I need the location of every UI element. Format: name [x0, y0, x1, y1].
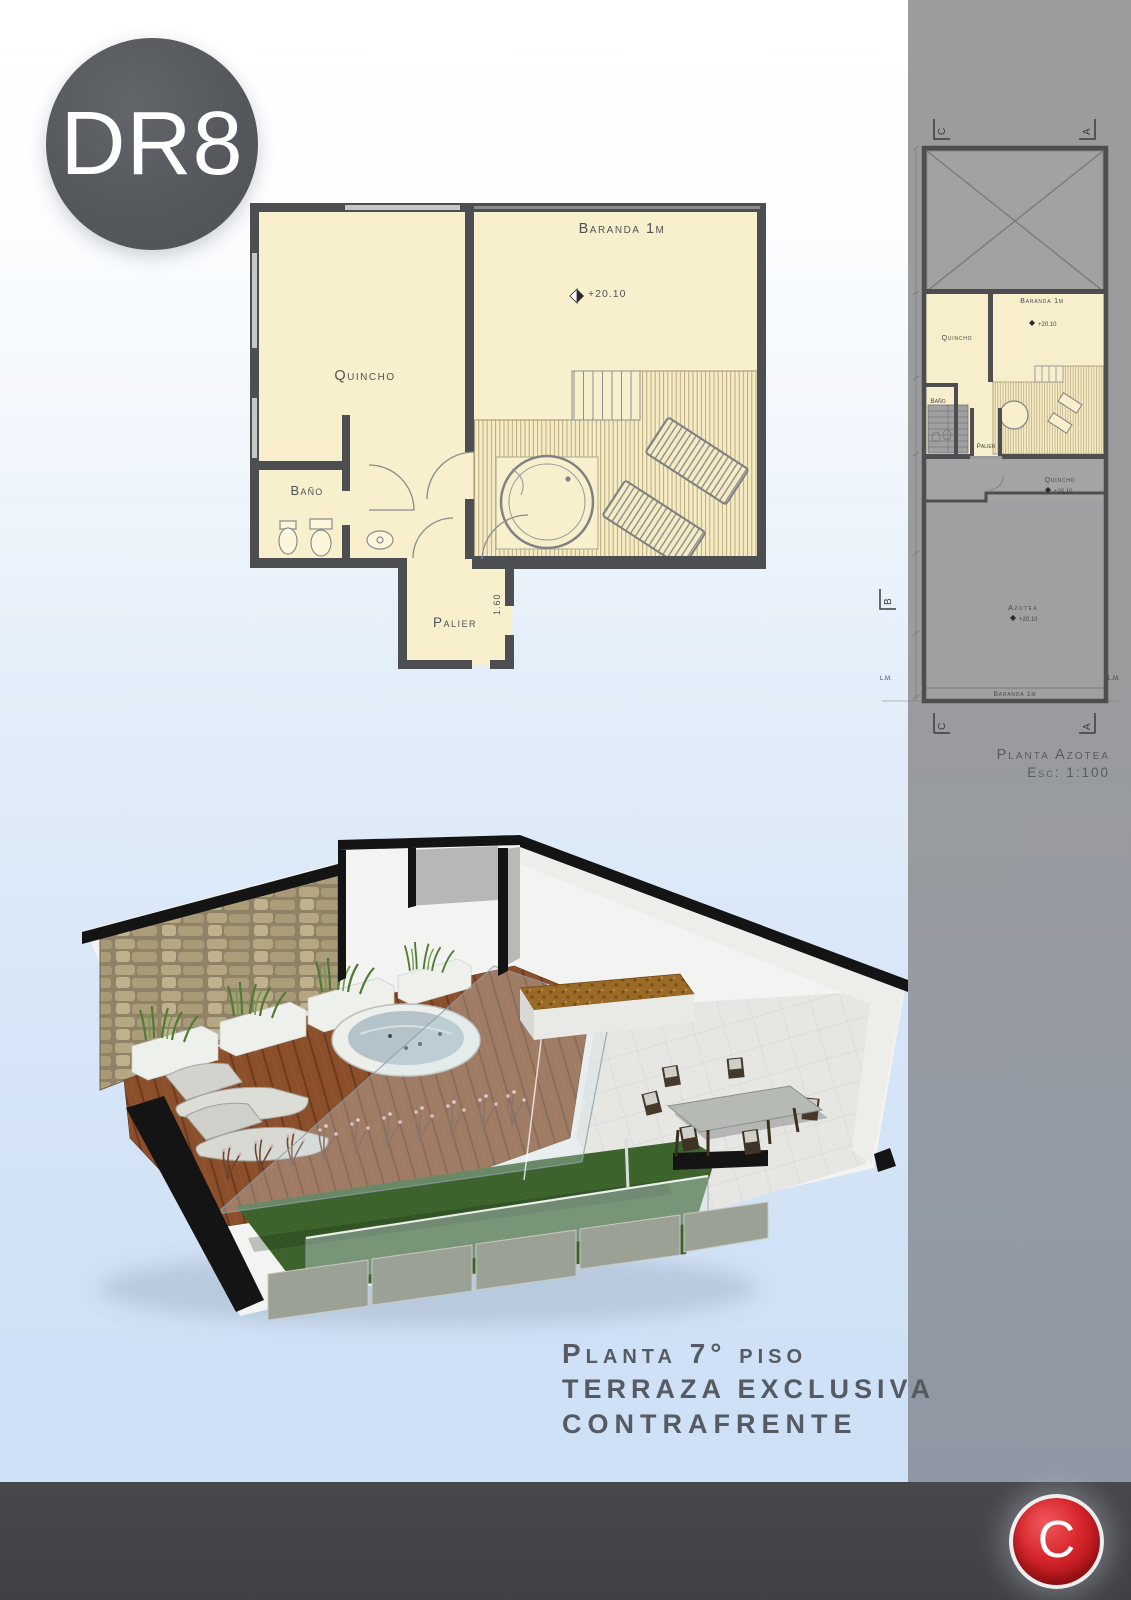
mini-quincho-top: Quincho	[942, 335, 973, 342]
section-c-top: C	[937, 128, 948, 135]
brochure-page: DR8	[0, 0, 1131, 1600]
section-a-bottom: A	[1082, 723, 1093, 730]
palier-dim-label: 1.60	[492, 593, 502, 615]
lm-left: L.M.	[880, 676, 892, 682]
dr8-logo: DR8	[46, 38, 258, 250]
caption-line-2: TERRAZA EXCLUSIVA	[562, 1372, 935, 1407]
footer-bar: EDIFICIO DR8 - Pueyrredon 566	[0, 1482, 1131, 1600]
caption-line-1: Planta 7° piso	[562, 1336, 935, 1372]
center-block-face	[408, 846, 498, 906]
section-a-top: A	[1082, 128, 1093, 135]
mini-hall	[927, 459, 1104, 501]
c-logo-letter: C	[1038, 1514, 1076, 1566]
dr8-logo-text: DR8	[60, 93, 243, 196]
bano-label: Baño	[291, 483, 324, 498]
mini-bano: Baño	[930, 398, 945, 405]
lm-right: L.M.	[1108, 676, 1120, 682]
level-label: +20.10	[588, 288, 626, 300]
mini-baranda-bottom: Baranda 1m	[994, 691, 1037, 698]
jacuzzi-plan	[496, 456, 598, 549]
c-logo: C	[1009, 1494, 1104, 1589]
mini-azotea	[927, 501, 1104, 699]
mini-palier: Palier	[977, 443, 996, 450]
mini-jacuzzi	[1000, 401, 1028, 429]
caption-line-3: CONTRAFRENTE	[562, 1407, 935, 1442]
render-caption: Planta 7° piso TERRAZA EXCLUSIVA CONTRAF…	[562, 1336, 935, 1443]
terrace-render	[68, 808, 938, 1333]
azotea-plan: C A B C A Baranda 1m +20.10 Quincho Baño…	[872, 33, 1128, 785]
mini-level-azotea: +20.10	[1019, 617, 1038, 623]
quincho-label: Quincho	[334, 368, 395, 384]
palier-label: Palier	[433, 615, 477, 630]
mini-azotea: Azotea	[1008, 603, 1038, 612]
section-b: B	[883, 598, 894, 605]
side-plan-scale: Esc: 1:100	[1027, 765, 1110, 780]
section-c-bottom: C	[937, 723, 948, 730]
mini-baranda-top: Baranda 1m	[1020, 298, 1064, 305]
main-floor-plan: Quincho Baranda 1m +20.10 Baño Palier 1.…	[250, 203, 770, 673]
side-plan-title: Planta Azotea	[997, 747, 1110, 763]
baranda-label: Baranda 1m	[579, 221, 666, 237]
mini-level-top: +20.10	[1038, 322, 1057, 328]
mini-quincho-mid: Quincho	[1045, 477, 1076, 484]
mini-level-mid: +20.10	[1054, 489, 1073, 495]
